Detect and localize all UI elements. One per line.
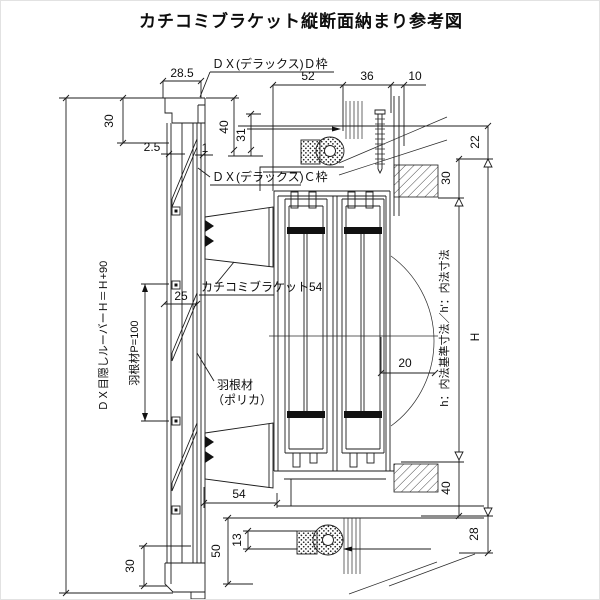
- dim-right-30: 30: [439, 171, 453, 185]
- head-screw: [375, 110, 385, 173]
- dim-20: 20: [398, 356, 412, 370]
- dim-25: 25: [174, 289, 188, 303]
- label-blade-pitch: 羽根材P=100: [127, 320, 141, 385]
- leader-lines: [197, 72, 334, 381]
- dim-36: 36: [360, 69, 374, 83]
- label-blade-material: 羽根材: [217, 378, 253, 392]
- dim-52: 52: [301, 69, 315, 83]
- dim-right-40: 40: [439, 481, 453, 495]
- dim-28-5: 28.5: [170, 66, 194, 80]
- louver-frame-lines: [165, 98, 205, 599]
- dim-1: 1: [202, 141, 209, 155]
- kachikomi-brackets: [205, 207, 273, 488]
- page-title: カチコミブラケット縦断面納まり参考図: [139, 11, 463, 31]
- dim-head-40: 40: [217, 120, 231, 134]
- dim-13: 13: [230, 533, 244, 547]
- dim-10: 10: [408, 69, 422, 83]
- drawing-page: カチコミブラケット縦断面納まり参考図: [0, 0, 600, 600]
- dim-head-31: 31: [234, 128, 248, 142]
- wall-hatch-top: [394, 165, 438, 197]
- dim-right-28: 28: [467, 527, 481, 541]
- label-dx-c-frame: ＤＸ(デラックス)Ｃ枠: [212, 169, 328, 184]
- label-bracket54: カチコミブラケット54: [201, 279, 323, 294]
- dim-H: H: [468, 333, 482, 342]
- dim-54: 54: [232, 487, 246, 501]
- dim-bottom-left-30: 30: [123, 559, 137, 573]
- label-dx-d-frame: ＤＸ(デラックス)Ｄ枠: [212, 56, 328, 71]
- dim-50: 50: [209, 544, 223, 558]
- label-louver-height: ＤＸ目隠しルーバーＨ＝Ｈ+90: [97, 261, 110, 412]
- label-inner-dim-note: h：内法基準寸法／h'：内法寸法: [437, 249, 451, 406]
- dim-2-5: 2.5: [144, 140, 161, 154]
- louver-clips: [172, 207, 180, 514]
- dim-top-left-30: 30: [102, 114, 116, 128]
- window-frame-lines: [269, 191, 438, 471]
- label-blade-material-2: （ポリカ）: [212, 393, 272, 407]
- wall-hatch-bottom: [394, 464, 438, 492]
- dim-right-22: 22: [468, 135, 482, 149]
- section-drawing: カチコミブラケット縦断面納まり参考図: [1, 1, 600, 600]
